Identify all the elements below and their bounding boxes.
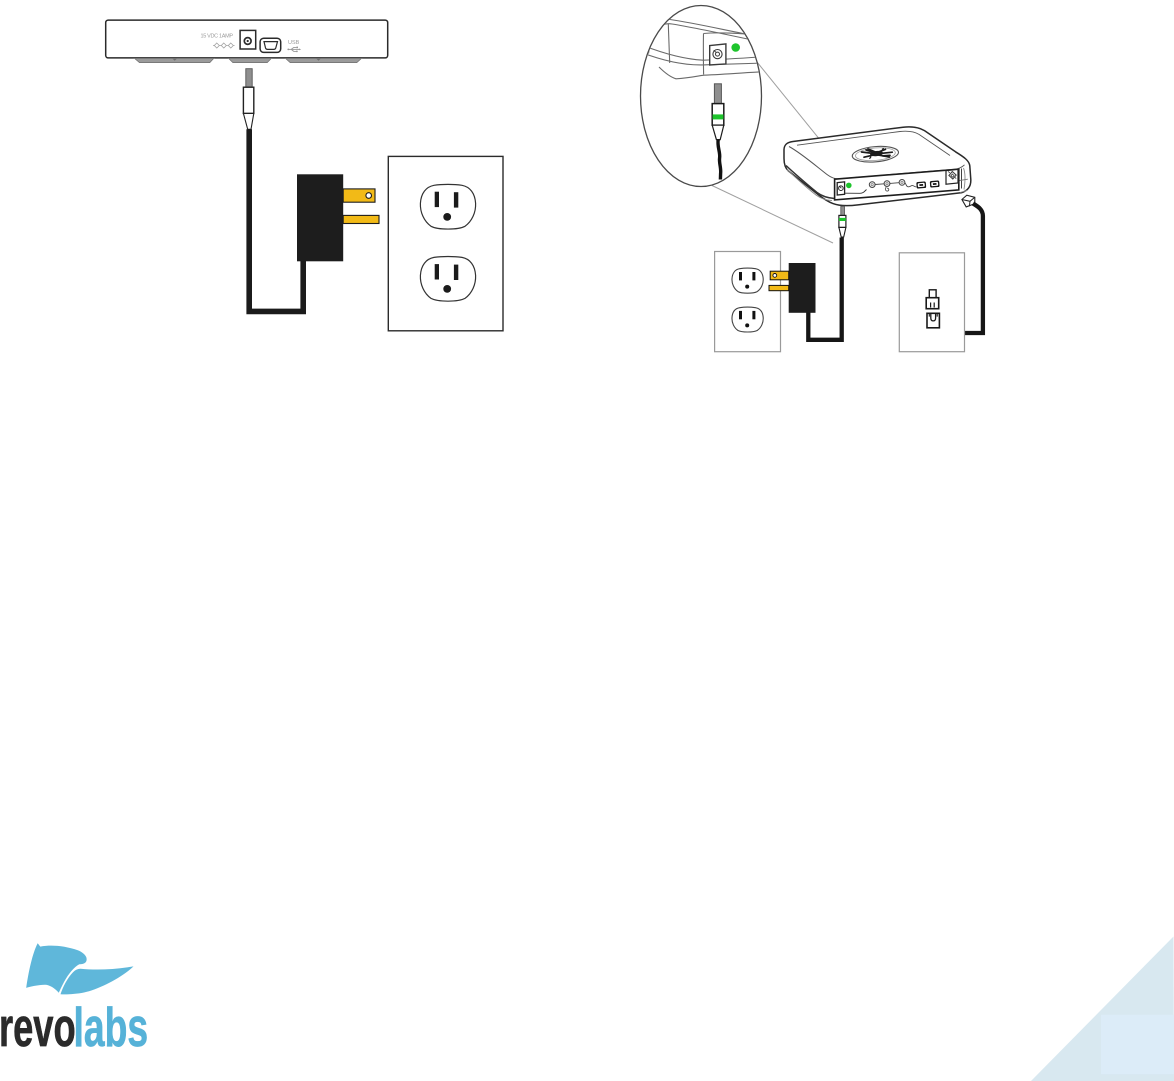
svg-text:labs: labs (74, 996, 149, 1058)
svg-text:15 VDC 1AMP: 15 VDC 1AMP (201, 34, 234, 40)
svg-text:USB: USB (288, 40, 300, 46)
svg-text:revo: revo (0, 996, 76, 1057)
